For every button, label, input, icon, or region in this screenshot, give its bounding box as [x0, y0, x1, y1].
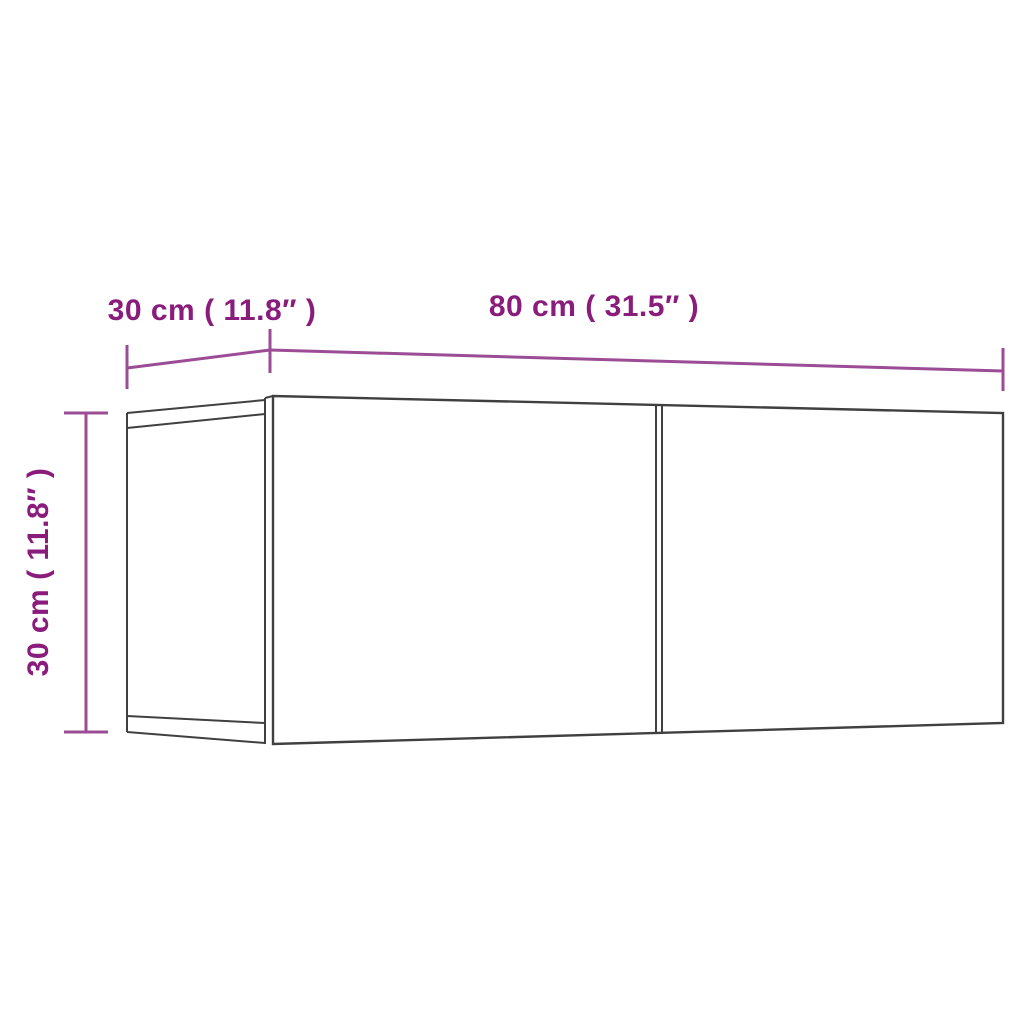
dimension-labels: 30 cm ( 11.8″ ) 80 cm ( 31.5″ ) 30 cm ( … — [22, 290, 699, 676]
cabinet-middle-divider — [656, 405, 662, 733]
label-top-depth: 30 cm ( 11.8″ ) — [108, 294, 317, 327]
diagram-canvas: 30 cm ( 11.8″ ) 80 cm ( 31.5″ ) 30 cm ( … — [0, 0, 1024, 1024]
cabinet-side-panel-top-strip — [127, 400, 265, 428]
dimension-line-top-width — [270, 350, 1003, 371]
dimension-line-top-depth — [127, 350, 270, 368]
label-front-width: 80 cm ( 31.5″ ) — [489, 290, 699, 323]
dimension-diagram-svg: 30 cm ( 11.8″ ) 80 cm ( 31.5″ ) 30 cm ( … — [0, 0, 1024, 1024]
cabinet-drawing — [127, 396, 1003, 744]
label-height: 30 cm ( 11.8″ ) — [22, 468, 55, 677]
dimension-annotations — [64, 329, 1003, 732]
cabinet-front-outline — [273, 396, 1003, 744]
cabinet-side-panel-bottom-strip — [127, 716, 265, 743]
